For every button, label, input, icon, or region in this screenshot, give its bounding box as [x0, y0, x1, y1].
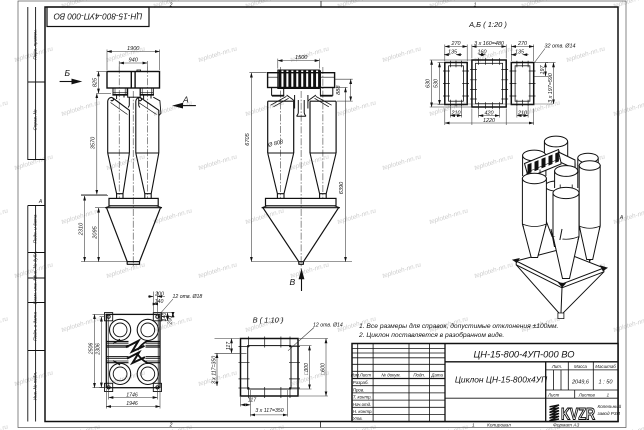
svg-text:teploteh-nn.ru: teploteh-nn.ru	[61, 0, 102, 10]
svg-text:Пров.: Пров.	[353, 387, 365, 392]
svg-text:1946: 1946	[126, 401, 138, 407]
svg-text:117: 117	[248, 398, 257, 404]
svg-text:6390: 6390	[339, 181, 345, 194]
svg-text:Дата: Дата	[430, 373, 443, 378]
svg-text:200: 200	[154, 292, 164, 298]
svg-text:№ докум.: № докум.	[381, 373, 400, 378]
svg-text:2049,6: 2049,6	[571, 380, 590, 386]
svg-text:teploteh-nn.ru: teploteh-nn.ru	[198, 153, 239, 172]
svg-text:teploteh-nn.ru: teploteh-nn.ru	[613, 423, 644, 430]
svg-text:Листов: Листов	[578, 393, 596, 398]
svg-text:teploteh-nn.ru: teploteh-nn.ru	[337, 99, 378, 118]
svg-text:32 отв. Ø14: 32 отв. Ø14	[545, 44, 576, 50]
svg-text:Подп. и дата: Подп. и дата	[33, 312, 38, 341]
svg-text:Изм: Изм	[351, 373, 359, 378]
svg-text:135: 135	[448, 49, 458, 55]
svg-text:teploteh-nn.ru: teploteh-nn.ru	[14, 153, 55, 172]
svg-text:Лит.: Лит.	[551, 364, 562, 369]
svg-text:teploteh-nn.ru: teploteh-nn.ru	[61, 423, 102, 430]
svg-text:teploteh-nn.ru: teploteh-nn.ru	[153, 207, 194, 226]
svg-text:Т. контр.: Т. контр.	[353, 395, 372, 400]
svg-text:Циклон ЦН-15-800х4УП: Циклон ЦН-15-800х4УП	[455, 375, 548, 385]
svg-text:teploteh-nn.ru: teploteh-nn.ru	[198, 45, 239, 64]
svg-text:1 : 50: 1 : 50	[599, 380, 614, 386]
svg-text:Лист: Лист	[359, 373, 372, 378]
svg-text:teploteh-nn.ru: teploteh-nn.ru	[337, 207, 378, 226]
svg-text:2506: 2506	[89, 343, 95, 356]
svg-text:Инв. № подл.: Инв. № подл.	[33, 372, 38, 401]
svg-text:Н. контр.: Н. контр.	[353, 409, 373, 414]
svg-text:Инв. № дубл.: Инв. № дубл.	[33, 251, 38, 279]
svg-text:210: 210	[451, 110, 461, 116]
svg-text:teploteh-nn.ru: teploteh-nn.ru	[153, 0, 194, 10]
svg-text:А: А	[182, 95, 189, 105]
svg-text:teploteh-nn.ru: teploteh-nn.ru	[337, 0, 378, 10]
svg-text:210: 210	[517, 110, 527, 116]
svg-text:Копировал: Копировал	[487, 422, 511, 428]
svg-text:Копельный: Копельный	[598, 403, 622, 409]
svg-text:1: 1	[472, 422, 475, 428]
svg-text:teploteh-nn.ru: teploteh-nn.ru	[382, 45, 423, 64]
svg-text:6705: 6705	[245, 132, 251, 145]
svg-text:А,Б ( 1:20 ): А,Б ( 1:20 )	[468, 20, 507, 29]
svg-text:teploteh-nn.ru: teploteh-nn.ru	[245, 0, 286, 10]
svg-text:teploteh-nn.ru: teploteh-nn.ru	[0, 315, 9, 334]
svg-text:3 x 197=590: 3 x 197=590	[548, 73, 554, 103]
svg-text:940: 940	[129, 57, 139, 63]
svg-text:140: 140	[155, 299, 164, 305]
svg-text:1220: 1220	[483, 118, 495, 124]
svg-text:teploteh-nn.ru: teploteh-nn.ru	[245, 423, 286, 430]
svg-text:2310: 2310	[78, 222, 84, 236]
svg-text:420: 420	[485, 110, 494, 116]
svg-text:А: А	[38, 199, 43, 205]
svg-text:3 x 117=350: 3 x 117=350	[255, 408, 283, 414]
svg-text:KVZR: KVZR	[561, 405, 595, 424]
svg-text:teploteh-nn.ru: teploteh-nn.ru	[474, 153, 515, 172]
svg-text:Перв. примен.: Перв. примен.	[33, 29, 38, 60]
svg-text:2095: 2095	[92, 225, 98, 239]
svg-text:teploteh-nn.ru: teploteh-nn.ru	[0, 423, 9, 430]
svg-text:12 отв. Ø14: 12 отв. Ø14	[313, 323, 343, 329]
svg-text:Масштаб: Масштаб	[595, 364, 616, 369]
svg-text:Лист: Лист	[547, 393, 560, 398]
svg-text:teploteh-nn.ru: teploteh-nn.ru	[153, 423, 194, 430]
svg-text:1746: 1746	[126, 392, 138, 398]
svg-text:ЦН-15-800-4УП-000 ВО: ЦН-15-800-4УП-000 ВО	[474, 350, 575, 360]
svg-text:завод РЗП: завод РЗП	[597, 411, 621, 416]
svg-text:Подп. и дата: Подп. и дата	[33, 214, 38, 243]
svg-text:teploteh-nn.ru: teploteh-nn.ru	[429, 0, 470, 10]
svg-text:teploteh-nn.ru: teploteh-nn.ru	[106, 369, 147, 388]
svg-text:teploteh-nn.ru: teploteh-nn.ru	[106, 45, 147, 64]
svg-text:630: 630	[426, 79, 432, 88]
svg-text:2306: 2306	[96, 343, 102, 356]
svg-text:teploteh-nn.ru: teploteh-nn.ru	[290, 261, 331, 280]
svg-text:Справ. №: Справ. №	[33, 110, 38, 131]
svg-text:teploteh-nn.ru: teploteh-nn.ru	[198, 261, 239, 280]
svg-text:□600: □600	[320, 363, 326, 375]
svg-text:Формат А3: Формат А3	[553, 422, 580, 428]
svg-text:Б: Б	[65, 68, 71, 78]
svg-text:1. Все размеры для справок, до: 1. Все размеры для справок, допустимые о…	[359, 322, 559, 330]
svg-text:Масса: Масса	[574, 364, 588, 369]
svg-text:teploteh-nn.ru: teploteh-nn.ru	[198, 369, 239, 388]
svg-text:135: 135	[515, 49, 525, 55]
svg-text:teploteh-nn.ru: teploteh-nn.ru	[61, 315, 102, 334]
svg-text:ЦН-15-800-4УП-000 ВО: ЦН-15-800-4УП-000 ВО	[53, 12, 142, 21]
svg-text:2: 2	[169, 2, 173, 8]
svg-text:3 x 117=350: 3 x 117=350	[211, 356, 217, 384]
svg-text:Разраб.: Разраб.	[353, 380, 369, 385]
svg-text:1500: 1500	[295, 55, 308, 61]
svg-text:В ( 1:10 ): В ( 1:10 )	[253, 316, 284, 325]
svg-text:□300: □300	[304, 363, 310, 375]
svg-text:530: 530	[434, 79, 440, 88]
svg-text:888: 888	[336, 85, 342, 95]
svg-text:3 x 160=480: 3 x 160=480	[474, 41, 504, 47]
svg-text:1: 1	[474, 2, 477, 8]
svg-text:teploteh-nn.ru: teploteh-nn.ru	[337, 423, 378, 430]
svg-text:teploteh-nn.ru: teploteh-nn.ru	[382, 261, 423, 280]
svg-text:3570: 3570	[90, 136, 96, 149]
svg-text:teploteh-nn.ru: teploteh-nn.ru	[429, 423, 470, 430]
svg-text:teploteh-nn.ru: teploteh-nn.ru	[382, 153, 423, 172]
svg-text:teploteh-nn.ru: teploteh-nn.ru	[0, 0, 9, 10]
svg-text:197: 197	[540, 65, 546, 75]
svg-text:teploteh-nn.ru: teploteh-nn.ru	[61, 99, 102, 118]
svg-text:teploteh-nn.ru: teploteh-nn.ru	[0, 99, 9, 118]
svg-text:200: 200	[167, 316, 173, 326]
svg-text:Подп.: Подп.	[413, 373, 425, 378]
svg-text:Утв.: Утв.	[353, 416, 363, 421]
svg-text:270: 270	[451, 41, 461, 47]
svg-text:2. Циклон поставляется в разоб: 2. Циклон поставляется в разобранном вид…	[358, 331, 504, 339]
svg-text:160: 160	[478, 49, 487, 55]
svg-text:270: 270	[517, 41, 527, 47]
svg-text:teploteh-nn.ru: teploteh-nn.ru	[290, 153, 331, 172]
svg-text:teploteh-nn.ru: teploteh-nn.ru	[429, 207, 470, 226]
svg-text:2: 2	[169, 422, 173, 428]
svg-text:Нач.отд.: Нач.отд.	[353, 402, 372, 407]
svg-text:teploteh-nn.ru: teploteh-nn.ru	[245, 99, 286, 118]
svg-text:А: А	[619, 215, 624, 221]
svg-text:825: 825	[92, 77, 98, 87]
svg-text:teploteh-nn.ru: teploteh-nn.ru	[429, 99, 470, 118]
svg-text:teploteh-nn.ru: teploteh-nn.ru	[0, 207, 9, 226]
svg-text:12 отв. Ø18: 12 отв. Ø18	[173, 294, 203, 300]
svg-text:Взам. инв. №: Взам. инв. №	[33, 276, 38, 304]
svg-text:teploteh-nn.ru: teploteh-nn.ru	[106, 261, 147, 280]
svg-text:teploteh-nn.ru: teploteh-nn.ru	[474, 261, 515, 280]
svg-text:Ø 808: Ø 808	[267, 139, 285, 149]
svg-text:1900: 1900	[127, 46, 140, 52]
svg-text:teploteh-nn.ru: teploteh-nn.ru	[521, 0, 562, 10]
svg-text:В: В	[290, 277, 296, 287]
svg-text:117: 117	[226, 341, 232, 350]
